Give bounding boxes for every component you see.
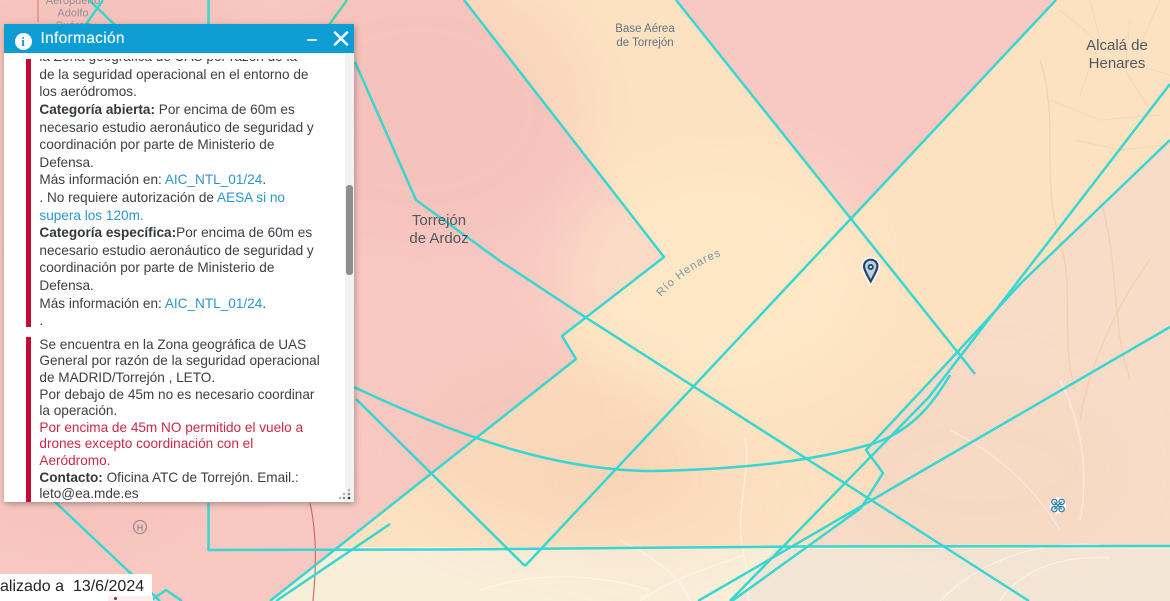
svg-text:Aeropuerto: Aeropuerto xyxy=(46,0,100,7)
svg-text:Base Aérea: Base Aérea xyxy=(615,23,675,35)
svg-text:de Torrejón: de Torrejón xyxy=(616,37,673,49)
svg-text:de Ardoz: de Ardoz xyxy=(409,230,468,247)
svg-text:Adolfo: Adolfo xyxy=(57,8,88,20)
svg-text:H: H xyxy=(137,523,144,533)
svg-text:Henares: Henares xyxy=(1089,55,1146,72)
svg-text:Alcalá de: Alcalá de xyxy=(1086,37,1148,54)
svg-text:Torrejón: Torrejón xyxy=(412,212,466,229)
